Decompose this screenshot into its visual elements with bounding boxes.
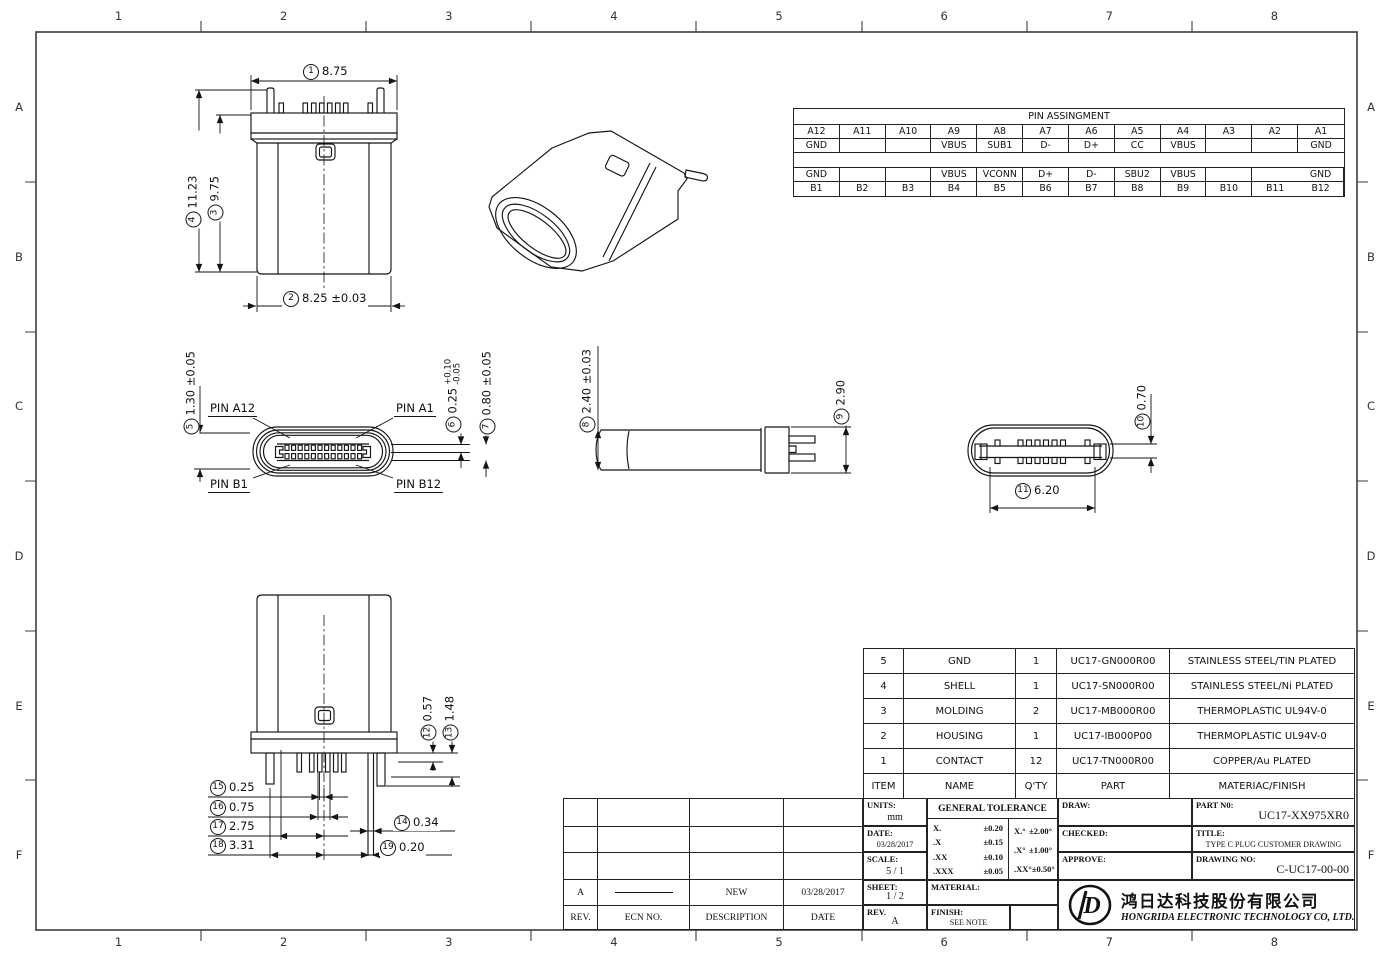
dim-4: 411.23 (185, 131, 202, 229)
dim-11-value: 6.20 (1034, 482, 1060, 499)
pin-b12-label: PIN B12 (394, 477, 443, 493)
tolerance-row: .XXX±0.05 (928, 866, 1008, 876)
pin-cell: B7 (1069, 182, 1115, 196)
pin-row-separator (794, 153, 1344, 167)
bom-header: Q'TY (1016, 774, 1057, 799)
zone-label-C: C (1362, 331, 1380, 481)
part-no-value: UC17-XX975XR0 (1193, 808, 1354, 823)
bom-header: MATERIAC/FINISH (1170, 774, 1354, 799)
pin-cell: B3 (886, 182, 932, 196)
tolerance-sym: .XXX (933, 866, 954, 876)
tolerance-val: ±0.15 (983, 837, 1003, 847)
dim-3-value: 9.75 (207, 176, 224, 202)
zone-label-2: 2 (201, 7, 366, 25)
bom-cell: 4 (864, 674, 904, 699)
balloon-15: 15 (210, 780, 226, 796)
rev-cell-empty (564, 827, 598, 853)
pin-cell: A3 (1206, 125, 1252, 139)
tolerance-sym: .XX° (1014, 864, 1032, 874)
zone-label-6: 6 (862, 7, 1027, 25)
bom-cell: SHELL (904, 674, 1016, 699)
zone-label-C: C (10, 331, 28, 481)
dim-11: 116.20 (1014, 482, 1061, 499)
pin-cell: GND (794, 139, 840, 153)
bom-cell: THERMOPLASTIC UL94V-0 (1170, 699, 1354, 724)
bom-cell: 1 (1016, 674, 1057, 699)
balloon-1: 1 (303, 64, 319, 80)
bom-cell: UC17-GN000R00 (1057, 649, 1170, 674)
pin-cell: D+ (1023, 168, 1069, 182)
dim-17-value: 2.75 (229, 818, 255, 835)
zone-label-7: 7 (1027, 7, 1192, 25)
checked-box: CHECKED: (1058, 826, 1192, 852)
approve-label: APPROVE: (1062, 854, 1106, 864)
rev-cell-empty (690, 827, 784, 853)
pin-table-title: PIN ASSINGMENT (794, 109, 1344, 125)
pin-cell: A10 (886, 125, 932, 139)
pin-cell: A11 (840, 125, 886, 139)
dim-16: 160.75 (209, 799, 256, 816)
balloon-16: 16 (210, 800, 226, 816)
bom-cell: COPPER/Au PLATED (1170, 749, 1354, 774)
zone-label-B: B (1362, 182, 1380, 332)
pin-cell: A5 (1115, 125, 1161, 139)
revision-table: A NEW 03/28/2017 REV. ECN NO. DESCRIPTIO… (563, 798, 863, 930)
pin-cell: B5 (977, 182, 1023, 196)
rev-cell-empty (598, 827, 690, 853)
dim-7: 70.80 ±0.05 (479, 326, 496, 436)
zone-label-4: 4 (531, 7, 696, 25)
zone-label-3: 3 (366, 933, 531, 951)
pin-cell (840, 139, 886, 153)
balloon-19: 19 (380, 840, 396, 856)
dim-16-value: 0.75 (229, 799, 255, 816)
pin-cell: SUB1 (977, 139, 1023, 153)
dim-10-value: 0.70 (1134, 385, 1151, 411)
dim-4-value: 11.23 (185, 176, 202, 209)
zone-label-8: 8 (1192, 933, 1357, 951)
rev-cell-empty (690, 799, 784, 827)
pin-cell: VCONN (977, 168, 1023, 182)
dim-1-value: 8.75 (322, 63, 348, 80)
pin-cell: B8 (1115, 182, 1161, 196)
material-label: MATERIAL: (931, 882, 980, 892)
zone-label-1: 1 (36, 933, 201, 951)
ecn-line (615, 892, 673, 893)
bom-cell: STAINLESS STEEL/Ni PLATED (1170, 674, 1354, 699)
tolerance-val: ±1.00° (1029, 845, 1052, 855)
zone-columns-bottom: 12345678 (36, 933, 1357, 951)
dim-18-value: 3.31 (229, 837, 255, 854)
dim-6: 60.25+0.10-0.05 (445, 326, 462, 434)
front-view (195, 75, 405, 312)
tolerance-sym: X.° (1014, 826, 1026, 836)
pin-cell: B4 (931, 182, 977, 196)
dim-19-value: 0.20 (399, 839, 425, 856)
bom-cell: 1 (1016, 724, 1057, 749)
rev-cell-empty (564, 853, 598, 880)
contact-pins (285, 445, 362, 459)
zone-label-2: 2 (201, 933, 366, 951)
pin-cell (886, 139, 932, 153)
pin-cell: VBUS (931, 139, 977, 153)
tolerance-val: ±0.10 (983, 852, 1003, 862)
tolerance-row: X.°±2.00° (1009, 826, 1057, 836)
pin-cell: VBUS (931, 168, 977, 182)
pin-cell: A6 (1069, 125, 1115, 139)
tolerance-val: ±2.00° (1029, 826, 1052, 836)
bom-cell: 5 (864, 649, 904, 674)
dim-2: 28.25 ±0.03 (282, 290, 368, 307)
drawing-sheet: 12345678 12345678 ABCDEF ABCDEF 18.75 28… (0, 0, 1392, 960)
draw-box: DRAW: (1058, 798, 1192, 826)
units-box: UNITS:mm (863, 798, 927, 826)
tolerance-row: .XX±0.10 (928, 852, 1008, 862)
bom-cell: THERMOPLASTIC UL94V-0 (1170, 724, 1354, 749)
balloon-7: 7 (479, 419, 495, 435)
zone-label-F: F (10, 780, 28, 930)
dim-12-value: 0.57 (420, 696, 437, 722)
dim-19: 190.20 (379, 839, 426, 856)
dim-6-value: 0.25 (445, 388, 462, 414)
rev-cell-empty (564, 799, 598, 827)
company-block: D 鸿日达科技股份有限公司 HONGRIDA ELECTRONIC TECHNO… (1058, 880, 1355, 930)
sheet-value: 1 / 2 (864, 891, 926, 902)
zone-label-E: E (10, 631, 28, 781)
zone-label-A: A (10, 32, 28, 182)
dim-12: 120.57 (420, 678, 437, 742)
zone-label-4: 4 (531, 933, 696, 951)
dim-14-value: 0.34 (413, 814, 439, 831)
bom-cell: STAINLESS STEEL/TIN PLATED (1170, 649, 1354, 674)
dim-9: 92.90 (833, 358, 850, 426)
side-view (596, 346, 851, 473)
finish-value: SEE NOTE (928, 918, 1009, 927)
balloon-14: 14 (394, 815, 410, 831)
material-box: MATERIAL: (927, 880, 1058, 905)
rev-header-description: DESCRIPTION (690, 906, 784, 929)
pin-cell: GND (794, 168, 840, 182)
tolerance-box: GENERAL TOLERANCE X.±0.20.X±0.15.XX±0.10… (927, 798, 1058, 880)
company-logo: D (1067, 883, 1113, 927)
dim-6-tolerance: +0.10-0.05 (444, 359, 462, 385)
pin-cell: SBU2 (1115, 168, 1161, 182)
bom-header: PART (1057, 774, 1170, 799)
bom-cell: UC17-SN000R00 (1057, 674, 1170, 699)
balloon-2: 2 (283, 291, 299, 307)
bom-cell: MOLDING (904, 699, 1016, 724)
pin-a1-label: PIN A1 (394, 401, 436, 417)
tolerance-row: X.±0.20 (928, 823, 1008, 833)
tolerance-val: ±0.20 (983, 823, 1003, 833)
tolerance-row: .XX°±0.50° (1009, 864, 1057, 874)
tolerance-title: GENERAL TOLERANCE (928, 799, 1057, 819)
rev-entry-description: NEW (690, 880, 784, 906)
bom-header: NAME (904, 774, 1016, 799)
pin-cell: B10 (1206, 182, 1252, 196)
pin-b1-label: PIN B1 (208, 477, 250, 493)
dim-1: 18.75 (302, 63, 349, 80)
pin-cell (886, 168, 932, 182)
pin-cell (840, 168, 886, 182)
pin-cell: A1 (1298, 125, 1344, 139)
tolerance-val: ±0.50° (1032, 864, 1055, 874)
zone-label-3: 3 (366, 7, 531, 25)
pin-cell: VBUS (1161, 139, 1207, 153)
pin-cell: GND (1298, 168, 1344, 182)
rev-cell-empty (690, 853, 784, 880)
bom-cell: UC17-TN000R00 (1057, 749, 1170, 774)
dim-3: 39.75 (207, 134, 224, 222)
pin-cell: A12 (794, 125, 840, 139)
isometric-view (483, 131, 708, 282)
zone-label-E: E (1362, 631, 1380, 781)
balloon-6: 6 (445, 417, 461, 433)
dim-2-value: 8.25 ±0.03 (302, 290, 367, 307)
rev-cell-empty (784, 827, 862, 853)
rev-box: REV.A (863, 905, 927, 930)
tolerance-sym: .X° (1014, 845, 1026, 855)
tolerance-sym: .XX (933, 852, 947, 862)
balloon-13: 13 (442, 725, 458, 741)
zone-label-6: 6 (862, 933, 1027, 951)
pin-cell: B6 (1023, 182, 1069, 196)
rev-cell-empty (598, 853, 690, 880)
balloon-8: 8 (579, 417, 595, 433)
pin-cell (1252, 139, 1298, 153)
pin-cell (1206, 168, 1252, 182)
dim-13-value: 1.48 (442, 696, 459, 722)
title-box: TITLE:TYPE C PLUG CUSTOMER DRAWING (1192, 826, 1355, 852)
bom-header: ITEM (864, 774, 904, 799)
pin-a12-label: PIN A12 (208, 401, 257, 417)
balloon-4: 4 (185, 212, 201, 228)
pin-cell: D- (1069, 168, 1115, 182)
balloon-18: 18 (210, 838, 226, 854)
company-name-en: HONGRIDA ELECTRONIC TECHNOLOGY CO, LTD. (1121, 912, 1354, 923)
units-value: mm (864, 812, 926, 823)
zone-label-F: F (1362, 780, 1380, 930)
zone-rows-right: ABCDEF (1362, 32, 1380, 930)
draw-label: DRAW: (1062, 800, 1090, 810)
dim-17: 172.75 (209, 818, 256, 835)
rev-entry-rev: A (564, 880, 598, 906)
bom-cell: 12 (1016, 749, 1057, 774)
zone-label-5: 5 (697, 933, 862, 951)
title-value: TYPE C PLUG CUSTOMER DRAWING (1193, 840, 1354, 849)
pin-cell: VBUS (1161, 168, 1207, 182)
pin-cell: A8 (977, 125, 1023, 139)
rear-face-view (968, 394, 1157, 513)
balloon-9: 9 (833, 409, 849, 425)
company-name-cn: 鸿日达科技股份有限公司 (1121, 888, 1354, 912)
scale-label: SCALE: (867, 854, 898, 864)
dim-13: 131.48 (442, 678, 459, 742)
balloon-5: 5 (183, 419, 199, 435)
pin-cell: D- (1023, 139, 1069, 153)
dim-8: 82.40 ±0.03 (579, 324, 596, 434)
drawing-no-value: C-UC17-00-00 (1193, 862, 1354, 877)
balloon-12: 12 (420, 725, 436, 741)
dim-14: 140.34 (393, 814, 440, 831)
dim-5-value: 1.30 ±0.05 (183, 351, 200, 416)
tolerance-sym: .X (933, 837, 941, 847)
dim-10: 100.70 (1134, 369, 1151, 431)
bom-cell: 1 (864, 749, 904, 774)
bom-cell: UC17-MB000R00 (1057, 699, 1170, 724)
tolerance-sym: X. (933, 823, 941, 833)
finish-box: FINISH:SEE NOTE (927, 905, 1010, 930)
pin-cell: CC (1115, 139, 1161, 153)
rev-entry-ecn (598, 880, 690, 906)
balloon-3: 3 (207, 205, 223, 221)
bom-cell: HOUSING (904, 724, 1016, 749)
dim-5: 51.30 ±0.05 (183, 326, 200, 436)
rev-header-ecn: ECN NO. (598, 906, 690, 929)
bom-table: 5GND1UC17-GN000R00STAINLESS STEEL/TIN PL… (863, 648, 1355, 800)
pin-cell (1252, 168, 1298, 182)
rev-value: A (864, 916, 926, 927)
balloon-11: 11 (1015, 483, 1031, 499)
balloon-17: 17 (210, 819, 226, 835)
rev-header-date: DATE (784, 906, 862, 929)
pin-cell: A4 (1161, 125, 1207, 139)
rev-cell-empty (784, 853, 862, 880)
tolerance-angular-list: X.°±2.00°.X°±1.00°.XX°±0.50° (1009, 819, 1057, 880)
pin-cell: B12 (1298, 182, 1344, 196)
bom-cell: 3 (864, 699, 904, 724)
dim-9-value: 2.90 (833, 380, 850, 406)
pin-cell: D+ (1069, 139, 1115, 153)
scale-box: SCALE:5 / 1 (863, 852, 927, 880)
dim-18: 183.31 (209, 837, 256, 854)
pin-cell: A9 (931, 125, 977, 139)
bom-cell: 1 (1016, 649, 1057, 674)
svg-text:D: D (1082, 893, 1100, 919)
tolerance-linear-list: X.±0.20.X±0.15.XX±0.10.XXX±0.05 (928, 819, 1009, 880)
date-value: 03/28/2017 (864, 840, 926, 849)
tolerance-row: .X°±1.00° (1009, 845, 1057, 855)
projection-symbol-box (1010, 905, 1058, 930)
zone-label-A: A (1362, 32, 1380, 182)
pin-assignment-table: PIN ASSINGMENT A12A11A10A9A8A7A6A5A4A3A2… (793, 108, 1345, 197)
zone-label-B: B (10, 182, 28, 332)
part-no-box: PART N0:UC17-XX975XR0 (1192, 798, 1355, 826)
rev-cell-empty (598, 799, 690, 827)
balloon-10: 10 (1134, 414, 1150, 430)
pin-cell: B1 (794, 182, 840, 196)
pin-cell: A7 (1023, 125, 1069, 139)
zone-columns-top: 12345678 (36, 7, 1357, 25)
dim-15: 150.25 (209, 779, 256, 796)
zone-label-8: 8 (1192, 7, 1357, 25)
zone-label-5: 5 (697, 7, 862, 25)
pin-cell (1206, 139, 1252, 153)
rev-entry-date: 03/28/2017 (784, 880, 862, 906)
pin-table-grid: A12A11A10A9A8A7A6A5A4A3A2A1GNDVBUSSUB1D-… (794, 125, 1344, 196)
zone-label-7: 7 (1027, 933, 1192, 951)
approve-box: APPROVE: (1058, 852, 1192, 880)
date-label: DATE: (867, 828, 893, 838)
sheet-box: SHEET:1 / 2 (863, 880, 927, 905)
dim-8-value: 2.40 ±0.03 (579, 349, 596, 414)
drawing-no-box: DRAWING NO:C-UC17-00-00 (1192, 852, 1355, 880)
pin-cell: B11 (1252, 182, 1298, 196)
pin-cell: A2 (1252, 125, 1298, 139)
pin-cell: B9 (1161, 182, 1207, 196)
zone-rows-left: ABCDEF (10, 32, 28, 930)
bom-cell: CONTACT (904, 749, 1016, 774)
dim-15-value: 0.25 (229, 779, 255, 796)
pin-cell: B2 (840, 182, 886, 196)
bom-cell: 2 (1016, 699, 1057, 724)
bom-cell: GND (904, 649, 1016, 674)
zone-label-1: 1 (36, 7, 201, 25)
tolerance-val: ±0.05 (983, 866, 1003, 876)
rev-header-rev: REV. (564, 906, 598, 929)
finish-label: FINISH: (931, 907, 963, 917)
dim-7-value: 0.80 ±0.05 (479, 351, 496, 416)
date-box: DATE:03/28/2017 (863, 826, 927, 852)
rev-cell-empty (784, 799, 862, 827)
zone-label-D: D (1362, 481, 1380, 631)
tolerance-row: .X±0.15 (928, 837, 1008, 847)
checked-label: CHECKED: (1062, 828, 1108, 838)
bom-cell: UC17-IB000P00 (1057, 724, 1170, 749)
scale-value: 5 / 1 (864, 866, 926, 877)
pin-cell: GND (1298, 139, 1344, 153)
zone-label-D: D (10, 481, 28, 631)
units-label: UNITS: (867, 800, 896, 810)
title-label: TITLE: (1196, 828, 1225, 838)
bom-cell: 2 (864, 724, 904, 749)
